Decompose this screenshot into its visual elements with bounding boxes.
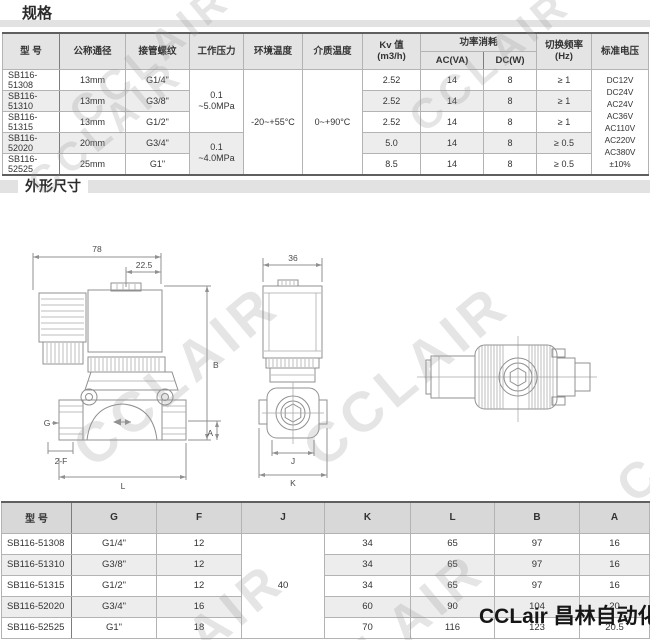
cell: G1" [126, 153, 190, 175]
cell: 14 [421, 111, 484, 132]
cell: SB116-51308 [2, 533, 72, 554]
col-header-model: 型 号 [3, 33, 60, 69]
cell: 16 [157, 596, 242, 617]
dim-label-port-height: A [207, 428, 213, 438]
cell: SB116-51310 [2, 554, 72, 575]
dim-label-body-length: L [121, 481, 126, 491]
dim-label-port-span: J [291, 456, 295, 466]
cell: 34 [325, 533, 411, 554]
cell: G3/4" [72, 596, 157, 617]
cell: 97 [495, 554, 580, 575]
cell: 65 [411, 554, 495, 575]
col-header-f: F [157, 502, 242, 533]
cell: 34 [325, 575, 411, 596]
cell: 12 [157, 575, 242, 596]
section-divider-bar: 外形尺寸 [0, 180, 650, 193]
col-header-k: K [325, 502, 411, 533]
dim-label-width: 36 [288, 253, 298, 263]
cell: 8.5 [363, 153, 421, 175]
table-header-row: 型 号 公称通径 接管螺纹 工作压力 环境温度 介质温度 Kv 值 (m3/h)… [3, 33, 649, 51]
cell: 34 [325, 554, 411, 575]
cell-j-merged: 40 [242, 533, 325, 638]
cell: G3/4" [126, 132, 190, 153]
cell: 60 [325, 596, 411, 617]
cell: 8 [484, 69, 537, 90]
dim-label-mounting-holes: 2-F [55, 456, 68, 466]
col-header-dc: DC(W) [484, 51, 537, 69]
cell: 25mm [60, 153, 126, 175]
col-header-a: A [580, 502, 650, 533]
cell: 20mm [60, 132, 126, 153]
cell: 13mm [60, 69, 126, 90]
cell: G1/2" [126, 111, 190, 132]
cell: ≥ 1 [537, 90, 592, 111]
cell: G3/8" [72, 554, 157, 575]
cell: G1/4" [72, 533, 157, 554]
valve-top-view-drawing [415, 332, 650, 440]
cell: SB116-52525 [3, 153, 60, 175]
cell: 8 [484, 90, 537, 111]
col-header-freq: 切换频率 (Hz) [537, 33, 592, 69]
col-header-power: 功率消耗 [421, 33, 537, 51]
section-divider-bar [0, 20, 650, 27]
col-header-l: L [411, 502, 495, 533]
col-header-media: 介质温度 [303, 33, 363, 69]
cell: 8 [484, 153, 537, 175]
cell: ≥ 1 [537, 69, 592, 90]
cell-pressure-merged: 0.1 ~5.0MPa [190, 69, 244, 132]
cell: ≥ 1 [537, 111, 592, 132]
cell: 18 [157, 617, 242, 638]
col-header-ambient: 环境温度 [244, 33, 303, 69]
cell: 14 [421, 153, 484, 175]
cell: 2.52 [363, 69, 421, 90]
cell: 8 [484, 132, 537, 153]
table-header-row: 型 号 G F J K L B A [2, 502, 650, 533]
table-row: SB116-51310 G3/8" 12 34 65 97 16 [2, 554, 650, 575]
cell: 13mm [60, 90, 126, 111]
col-header-ac: AC(VA) [421, 51, 484, 69]
cell: 65 [411, 533, 495, 554]
cell: SB116-52020 [2, 596, 72, 617]
cell: 70 [325, 617, 411, 638]
cell-pressure-merged: 0.1 ~4.0MPa [190, 132, 244, 175]
cell: 2.52 [363, 111, 421, 132]
cell: SB116-52020 [3, 132, 60, 153]
col-header-dn: 公称通径 [60, 33, 126, 69]
table-row: SB116-51315 G1/2" 12 34 65 97 16 [2, 575, 650, 596]
table-row: SB116-51308 13mm G1/4" 0.1 ~5.0MPa -20~+… [3, 69, 649, 90]
cell: 2.52 [363, 90, 421, 111]
cell: 5.0 [363, 132, 421, 153]
section-title-specs: 规格 [22, 2, 52, 23]
cell: SB116-51315 [2, 575, 72, 596]
col-header-voltage: 标准电压 [592, 33, 649, 69]
cell: 12 [157, 554, 242, 575]
dim-label-body-span: K [290, 478, 296, 487]
cell: SB116-51308 [3, 69, 60, 90]
cell: 65 [411, 575, 495, 596]
dim-label-coil-offset: 22.5 [136, 260, 153, 270]
cell: SB116-51310 [3, 90, 60, 111]
cell-media-merged: 0~+90°C [303, 69, 363, 175]
cell: 12 [157, 533, 242, 554]
col-header-model: 型 号 [2, 502, 72, 533]
cell-ambient-merged: -20~+55°C [244, 69, 303, 175]
cell: SB116-52525 [2, 617, 72, 638]
cell: 16 [580, 533, 650, 554]
cell: 14 [421, 69, 484, 90]
valve-front-view-drawing: 78 22.5 B [25, 240, 255, 505]
brand-logo: CCLair 昌林自动化 [479, 600, 650, 630]
cell: 16 [580, 575, 650, 596]
col-header-thread: 接管螺纹 [126, 33, 190, 69]
cell: 8 [484, 111, 537, 132]
cell: ≥ 0.5 [537, 132, 592, 153]
datasheet-page: CCLAIR CCLAIR CCLAIR CCLAIR CCLAIR CCLAI… [0, 0, 650, 640]
cell: G3/8" [126, 90, 190, 111]
cell: G1/2" [72, 575, 157, 596]
col-header-b: B [495, 502, 580, 533]
cell: G1/4" [126, 69, 190, 90]
col-header-g: G [72, 502, 157, 533]
cell: 14 [421, 90, 484, 111]
cell: 14 [421, 132, 484, 153]
section-title-dimensions: 外形尺寸 [18, 176, 88, 196]
valve-side-view-drawing: 36 J K [248, 252, 338, 487]
table-row: SB116-51308 G1/4" 12 40 34 65 97 16 [2, 533, 650, 554]
spec-table: 型 号 公称通径 接管螺纹 工作压力 环境温度 介质温度 Kv 值 (m3/h)… [2, 32, 649, 176]
dim-label-height: B [213, 360, 219, 370]
col-header-j: J [242, 502, 325, 533]
cell: ≥ 0.5 [537, 153, 592, 175]
cell: 13mm [60, 111, 126, 132]
cell-voltage-merged: DC12V DC24V AC24V AC36V AC110V AC220V AC… [592, 69, 649, 175]
cell: G1" [72, 617, 157, 638]
dim-label-total-width: 78 [92, 244, 102, 254]
cell: SB116-51315 [3, 111, 60, 132]
cell: 16 [580, 554, 650, 575]
cell: 97 [495, 575, 580, 596]
dim-label-inlet-thread: G [44, 418, 51, 428]
col-header-kv: Kv 值 (m3/h) [363, 33, 421, 69]
cell: 97 [495, 533, 580, 554]
col-header-pressure: 工作压力 [190, 33, 244, 69]
